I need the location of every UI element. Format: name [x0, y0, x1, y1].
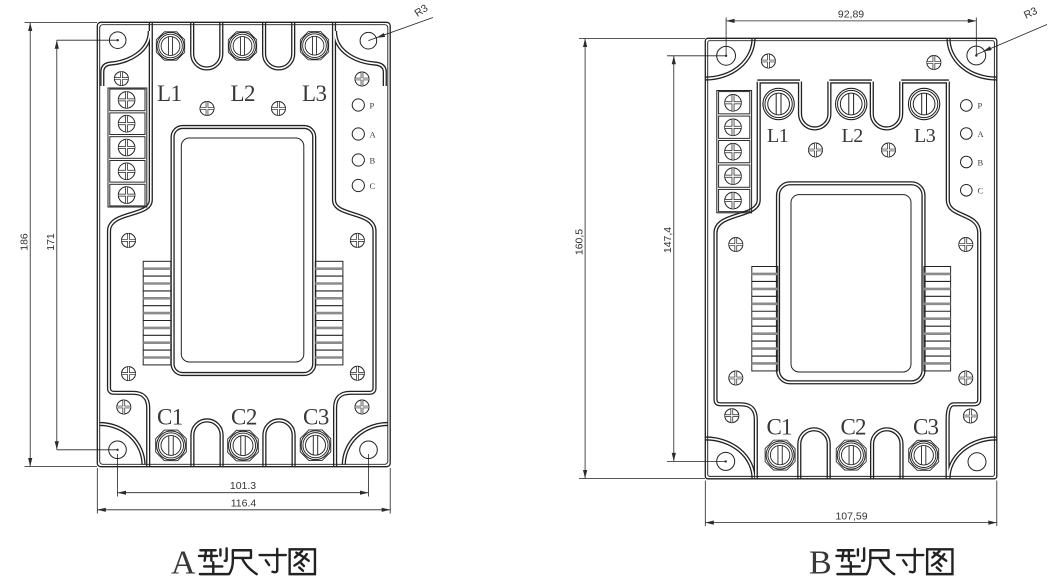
- svg-text:C2: C2: [841, 415, 867, 440]
- svg-text:A: A: [978, 129, 985, 139]
- svg-text:C1: C1: [157, 405, 183, 430]
- svg-text:B: B: [978, 157, 984, 167]
- svg-text:107,59: 107,59: [835, 511, 867, 523]
- svg-text:C3: C3: [913, 415, 939, 440]
- svg-text:P: P: [978, 101, 983, 111]
- svg-text:P: P: [370, 100, 375, 110]
- svg-text:L2: L2: [231, 81, 256, 106]
- svg-text:L2: L2: [842, 125, 863, 147]
- svg-text:A: A: [370, 129, 377, 139]
- svg-text:B: B: [809, 545, 832, 579]
- svg-text:186: 186: [19, 233, 31, 251]
- svg-text:160,5: 160,5: [573, 229, 585, 255]
- svg-text:R3: R3: [412, 2, 430, 19]
- svg-text:C2: C2: [231, 405, 257, 430]
- svg-text:116.4: 116.4: [231, 497, 257, 509]
- svg-text:L1: L1: [767, 125, 788, 147]
- svg-text:C3: C3: [303, 405, 329, 430]
- svg-text:L3: L3: [914, 125, 936, 147]
- svg-text:C: C: [370, 181, 376, 191]
- svg-text:171: 171: [45, 233, 57, 251]
- svg-text:A: A: [171, 545, 196, 579]
- svg-text:C: C: [978, 186, 984, 196]
- svg-text:R3: R3: [1022, 5, 1039, 22]
- svg-text:B: B: [370, 155, 376, 165]
- svg-text:92,89: 92,89: [838, 9, 864, 21]
- svg-text:147,4: 147,4: [662, 227, 674, 253]
- svg-text:L1: L1: [157, 81, 182, 106]
- svg-text:C1: C1: [767, 415, 793, 440]
- svg-text:101.3: 101.3: [230, 480, 256, 492]
- svg-text:L3: L3: [302, 81, 327, 106]
